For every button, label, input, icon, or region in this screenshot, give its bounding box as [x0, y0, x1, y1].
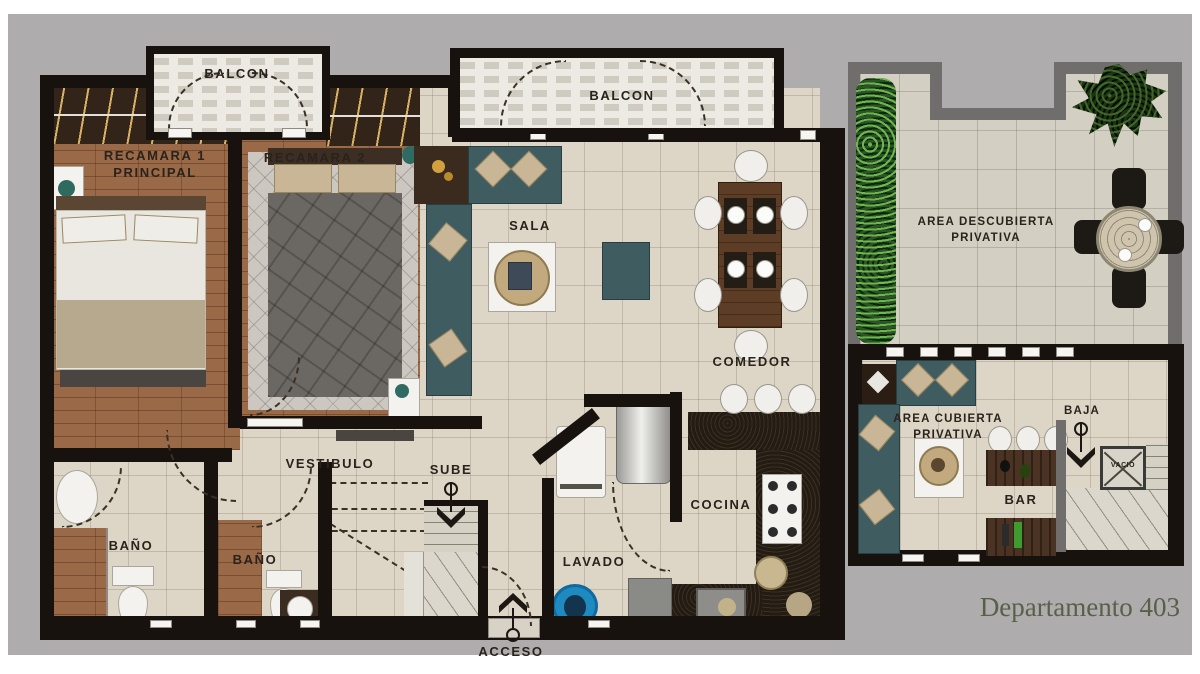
baja-arrow-icon	[1064, 420, 1098, 472]
bedroom1-bench	[60, 370, 206, 387]
threshold	[300, 620, 320, 628]
threshold	[958, 554, 980, 562]
patio-table	[1096, 206, 1162, 272]
hedge-plants	[856, 78, 896, 344]
floorplan-canvas: BALCON BALCON RECAMARA 1 PRINCIPAL RECAM…	[0, 0, 1200, 674]
plate	[756, 260, 774, 278]
label-balcon-small: BALCON	[187, 66, 287, 82]
label-area-cubierta-line1: AREA CUBIERTA	[874, 412, 1022, 426]
balcony-door-sill	[168, 128, 192, 138]
terrace-wall-right	[1168, 62, 1182, 346]
window-frame	[988, 347, 1006, 357]
label-area-descubierta-line2: PRIVATIVA	[905, 231, 1067, 245]
bedroom1-pillow	[133, 214, 198, 243]
coffee-table-decor	[508, 262, 532, 290]
understair-dash-line	[322, 530, 426, 532]
threshold	[236, 620, 256, 628]
bowl-decor	[786, 592, 812, 618]
label-area-cubierta-line2: PRIVATIVA	[874, 428, 1022, 442]
window-frame	[800, 130, 816, 140]
understair-dash-line	[322, 508, 426, 510]
terrace-wall-notch-bottom	[930, 108, 1066, 120]
terrace-wall-top-left	[848, 62, 938, 74]
wall-laundry-left	[542, 478, 554, 628]
flowers-icon	[444, 172, 453, 181]
window-frame	[886, 347, 904, 357]
window-frame	[920, 347, 938, 357]
threshold	[588, 620, 610, 628]
label-bar: BAR	[986, 492, 1056, 508]
wall-bath2-right	[318, 462, 332, 628]
plate	[727, 206, 745, 224]
label-recamara2: RECAMARA 2	[245, 150, 385, 166]
label-balcon-large: BALCON	[572, 88, 672, 104]
boiler-icon	[616, 398, 672, 484]
plate	[727, 260, 745, 278]
lamp-icon	[395, 384, 409, 398]
bottle-icon	[1020, 464, 1030, 478]
bottle-icon	[1000, 460, 1010, 472]
bowl-decor	[718, 598, 736, 616]
dining-chair	[734, 150, 768, 182]
label-sala: SALA	[495, 218, 565, 234]
bedroom2-closet-rod	[326, 115, 420, 117]
stove-icon	[762, 474, 802, 544]
bedroom2-closet	[326, 88, 420, 146]
label-bano1: BAÑO	[94, 538, 168, 554]
bar-stool	[788, 384, 816, 414]
plate	[756, 206, 774, 224]
window-frame	[1022, 347, 1040, 357]
covered-table-decor	[931, 458, 945, 472]
stairs-down-upper	[1146, 444, 1168, 490]
label-lavado: LAVADO	[555, 554, 633, 570]
label-vacio: VACIO	[1100, 462, 1146, 471]
patio-chair	[1112, 266, 1146, 308]
dining-chair	[780, 278, 808, 312]
sala-armchair	[602, 242, 650, 300]
label-area-descubierta-line1: AREA DESCUBIERTA	[905, 215, 1067, 229]
threshold	[150, 620, 172, 628]
bath2-toilet-tank	[266, 570, 302, 588]
bar-stool	[720, 384, 748, 414]
label-recamara1-line2: PRINCIPAL	[85, 165, 225, 181]
label-cocina: COCINA	[682, 497, 760, 513]
bedroom1-pillow	[61, 214, 126, 243]
label-comedor: COMEDOR	[702, 354, 802, 370]
bedroom2-pillow	[274, 164, 332, 193]
covered-wall-right	[1168, 344, 1184, 566]
wall-top-bedroom2	[326, 75, 458, 88]
wall-right	[820, 128, 845, 640]
bottle-icon	[1002, 524, 1009, 546]
plate	[1118, 248, 1132, 262]
dining-chair	[780, 196, 808, 230]
bar-stool	[754, 384, 782, 414]
washer-panel	[560, 484, 602, 489]
bath1-toilet-tank	[112, 566, 154, 586]
stairs-down	[1066, 488, 1168, 550]
plate	[1138, 218, 1152, 232]
bowl-decor	[754, 556, 788, 590]
wall-laundry-top	[584, 394, 676, 407]
bottle-icon	[1014, 522, 1022, 548]
label-baja: BAJA	[1054, 404, 1110, 418]
bedroom2-door-sill	[247, 418, 303, 427]
window-frame	[954, 347, 972, 357]
wall-laundry-kitchen-divider	[670, 392, 682, 522]
label-bano2: BAÑO	[217, 552, 293, 568]
wall-top-bedroom1	[40, 75, 150, 88]
bath2-shower-floor	[218, 520, 262, 628]
label-sube: SUBE	[420, 462, 482, 478]
label-recamara1-line1: RECAMARA 1	[85, 148, 225, 164]
wall-left	[40, 75, 54, 640]
tv-console	[336, 430, 414, 441]
sala-corner-table	[414, 146, 470, 204]
kitchen-counter-top	[688, 412, 820, 450]
threshold	[902, 554, 924, 562]
balcony-door-sill	[282, 128, 306, 138]
dining-chair	[694, 196, 722, 230]
window-frame	[1056, 347, 1074, 357]
flowers-icon	[432, 160, 445, 173]
bedroom1-blanket	[57, 300, 205, 368]
label-acceso: ACCESO	[469, 644, 553, 660]
terrace-notch	[938, 40, 1062, 108]
dining-chair	[694, 278, 722, 312]
sube-arrow-icon	[434, 480, 468, 532]
acceso-arrow-icon	[496, 592, 530, 642]
label-vestibulo: VESTIBULO	[268, 456, 392, 472]
patio-chair	[1112, 168, 1146, 210]
plant-icon	[58, 180, 75, 197]
plan-title: Departamento 403	[930, 592, 1180, 623]
bedroom2-pillow	[338, 164, 396, 193]
